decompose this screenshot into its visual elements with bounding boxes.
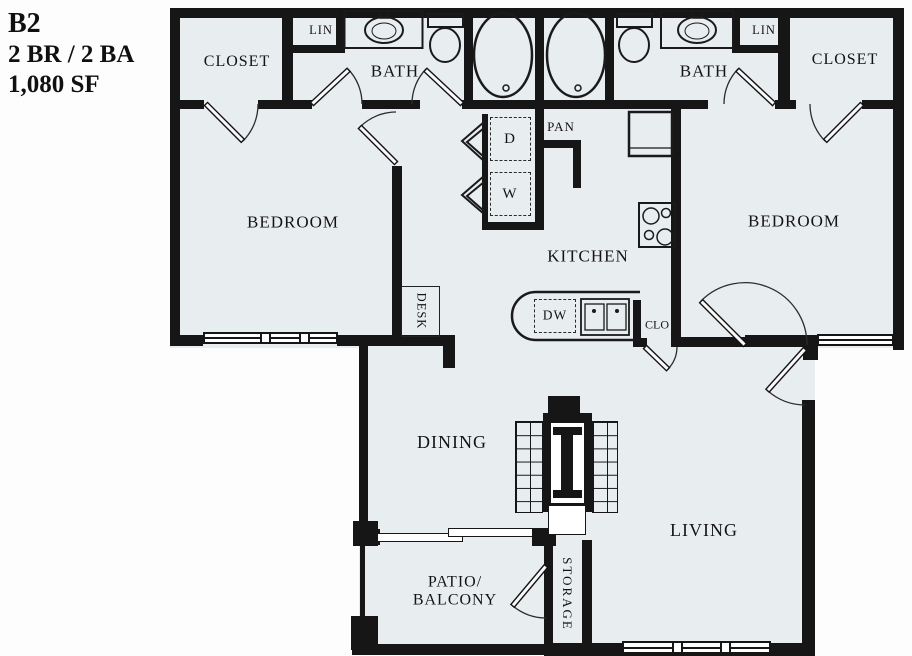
room-label-closet-left: CLOSET [204,53,270,71]
wall [573,140,581,188]
wall [443,346,455,368]
storage-shelf [548,505,586,535]
window-bedroom-right [817,334,894,346]
room-label-bedroom-right: BEDROOM [748,213,840,232]
room-label-dining: DINING [417,433,487,453]
wall [732,45,780,53]
floor-plan: B2 2 BR / 2 BA 1,080 SF [0,0,912,656]
wall [170,100,204,109]
wall [582,540,592,650]
room-label-desk: DESK [414,293,429,330]
patio-line2: BALCONY [413,591,497,609]
wall [464,8,473,105]
wall [633,338,647,347]
fireplace-icon [561,431,573,493]
window-mullion [672,641,683,654]
wall [862,100,904,109]
room-label-bath-right: BATH [680,63,728,82]
wall [605,8,614,103]
shelf-grid-right [592,421,618,513]
room-label-closet-small: CLO [645,318,669,331]
wall [282,45,344,53]
wall [893,8,904,350]
plan-bed-bath: 2 BR / 2 BA [8,40,134,70]
window-living [622,641,771,654]
room-label-pantry: PAN [547,120,575,134]
window-mullion [720,641,731,654]
room-label-linen-left: LIN [309,24,333,38]
plan-square-feet: 1,080 SF [8,70,134,100]
patio-post [351,616,378,650]
room-label-kitchen: KITCHEN [547,248,629,267]
sliding-door-panel [448,528,533,537]
window-mullion [299,332,310,344]
room-label-storage: STORAGE [559,557,575,631]
window-bedroom-left [203,332,338,344]
wall [802,400,815,655]
wall [778,8,790,109]
room-label-linen-right: LIN [752,24,776,38]
wall [544,528,553,655]
wall [535,8,544,230]
wall [362,100,420,109]
shelf-grid-left [515,421,543,513]
room-label-patio: PATIO/ BALCONY [413,573,497,608]
wall [359,337,368,533]
room-label-bath-left: BATH [371,63,419,82]
plan-code: B2 [8,8,134,40]
room-label-living: LIVING [670,521,738,541]
room-label-bedroom-left: BEDROOM [247,214,339,233]
wall [672,337,746,347]
wall [352,644,552,655]
appliance-label-dryer: D [504,131,516,148]
appliance-label-dishwasher: DW [543,309,568,324]
appliance-label-washer: W [502,186,517,203]
wall [336,8,345,53]
wall [282,8,293,109]
plan-title-block: B2 2 BR / 2 BA 1,080 SF [8,8,134,100]
wall [803,335,818,360]
room-label-closet-right: CLOSET [812,51,878,69]
patio-line1: PATIO/ [413,573,497,591]
wall [482,222,544,230]
wall [671,108,681,347]
wall [482,114,488,229]
wall [893,335,904,350]
patio-post [353,521,378,546]
window-mullion [260,332,271,344]
wall [170,8,180,346]
wall [170,335,203,346]
